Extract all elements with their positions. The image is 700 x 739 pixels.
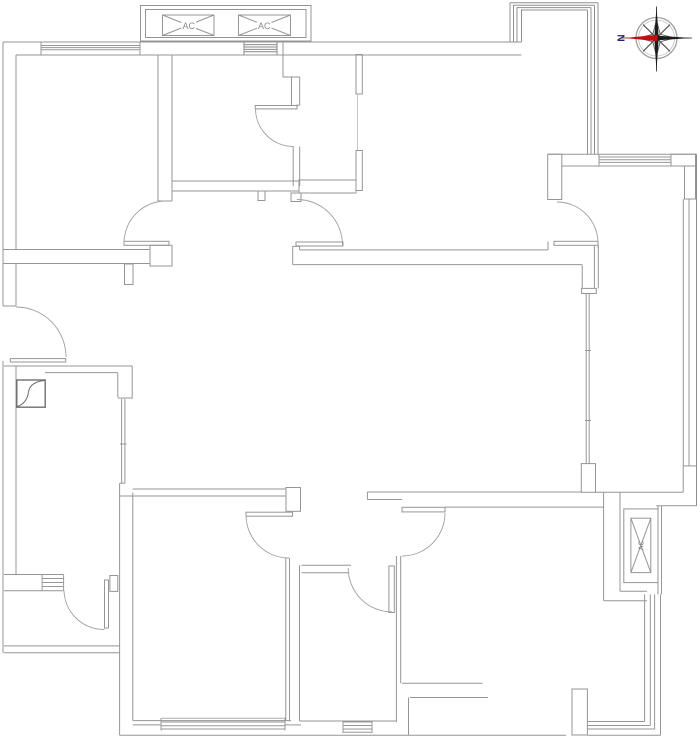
svg-text:AC: AC [258,21,271,31]
svg-text:AC: AC [638,541,645,551]
svg-text:N: N [617,34,628,41]
svg-text:AC: AC [182,21,195,31]
